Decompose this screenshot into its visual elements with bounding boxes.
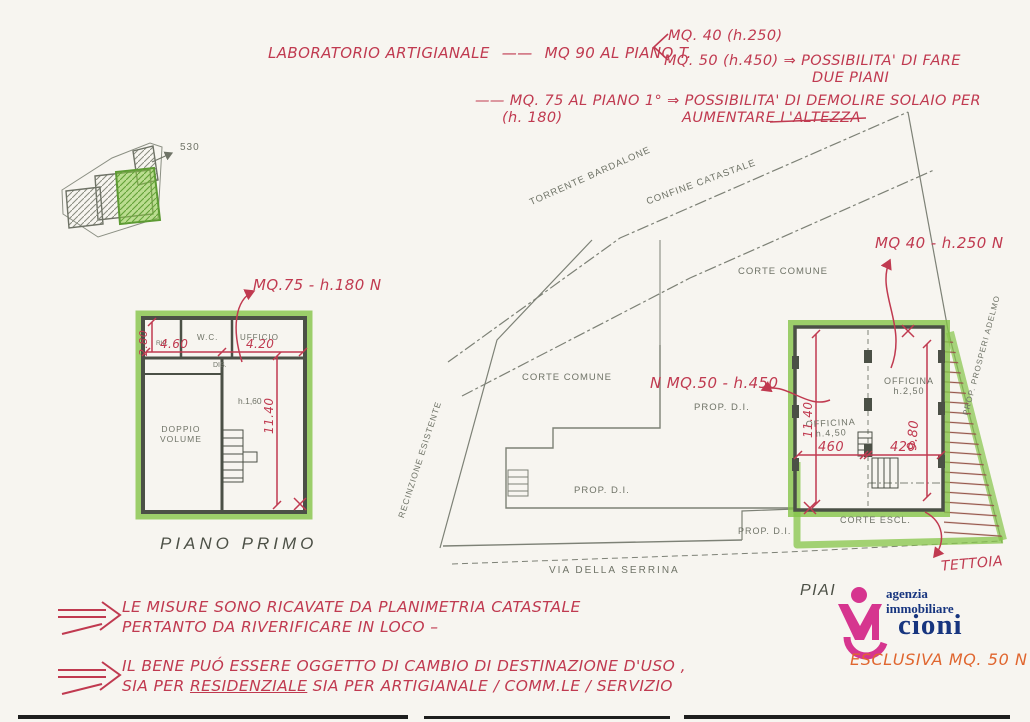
dim-vertical-small: 2.80 [137,330,150,356]
top-note-branch-b2: DUE PIANI [812,70,889,86]
first-floor-annotation: MQ.75 - h.180 N [253,276,381,294]
logo-cioni: cioni [898,609,963,642]
dim-ground-v-left: 11.40 [801,402,815,438]
dim-ground-h-left: 460 [818,440,844,455]
note-measure-line2: PERTANTO DA RIVERIFICARE IN LOCO – [122,618,438,636]
room-label-wc: W.C. [197,333,218,342]
note-usage-line2-post: SIA PER ARTIGIANALE / COMM.LE / SERVIZIO [307,677,673,695]
label-prop-di-3: PROP. D.I. [738,526,791,536]
top-note-line2-tail: AUMENTARE L'ALTEZZA [682,110,861,126]
top-note-line2-h: (h. 180) [502,110,563,126]
label-corte-comune-1: CORTE COMUNE [738,266,828,277]
dim-width-left: 4.60 [160,337,188,351]
red-note-mq50: N MQ.50 - h.450 [650,374,778,392]
exclusive-note: ESCLUSIVA MQ. 50 N [850,650,1028,669]
top-note-branch-a: MQ. 40 (h.250) [668,28,783,44]
dim-h160: h.1,60 [238,396,262,406]
dim-width-right: 4.20 [246,337,274,351]
room-label-doppio-volume: DOPPIO VOLUME [160,424,202,444]
inset-distance-label: 530 [180,142,200,153]
label-officina-right: OFFICINA h.2,50 [884,376,934,396]
label-corte-comune-2: CORTE COMUNE [522,372,612,383]
top-note-line2: —— MQ. 75 AL PIANO 1° ⇒ POSSIBILITA' DI … [475,93,981,109]
label-corte-escl: CORTE ESCL. [840,515,911,525]
note-measure-line1: LE MISURE SONO RICAVATE DA PLANIMETRIA C… [122,598,581,616]
cioni-logo-icon [838,587,884,656]
note-usage-line1: IL BENE PUÓ ESSERE OGGETTO DI CAMBIO DI … [122,657,686,675]
note-usage-line2-underlined: RESIDENZIALE [190,677,307,695]
top-note-branch-b: MQ. 50 (h.450) ⇒ POSSIBILITA' DI FARE [664,53,961,69]
note-arrow-1 [58,602,120,634]
label-prop-di-2: PROP. D.I. [574,485,630,496]
logo-agenzia: agenzia [886,586,928,602]
label-street: VIA DELLA SERRINA [549,565,680,576]
first-floor-caption: PIANO PRIMO [160,534,317,554]
room-label-dis: DIS. [213,362,227,369]
note-usage-line2-pre: SIA PER [122,677,190,695]
note-usage-line2: SIA PER RESIDENZIALE SIA PER ARTIGIANALE… [122,677,673,695]
top-note-line1: LABORATORIO ARTIGIANALE —— MQ 90 AL PIAN… [268,44,692,62]
dim-vertical-first-floor: 11.40 [262,398,276,434]
dim-ground-h-right: 420 [890,440,916,455]
red-note-mq40: MQ 40 - h.250 N [875,234,1003,252]
top-note-line1-dash: —— [502,44,533,62]
top-note-line1-label: LABORATORIO ARTIGIANALE [268,44,490,62]
scanned-floor-plan-page: LABORATORIO ARTIGIANALE —— MQ 90 AL PIAN… [0,0,1030,722]
label-prop-di-1: PROP. D.I. [694,402,750,413]
scan-artifact [18,715,1010,719]
site-inset-drawing [62,143,172,237]
label-piai: PIAI [800,582,836,600]
first-floor-drawing [139,291,310,517]
note-arrow-2 [58,662,120,694]
